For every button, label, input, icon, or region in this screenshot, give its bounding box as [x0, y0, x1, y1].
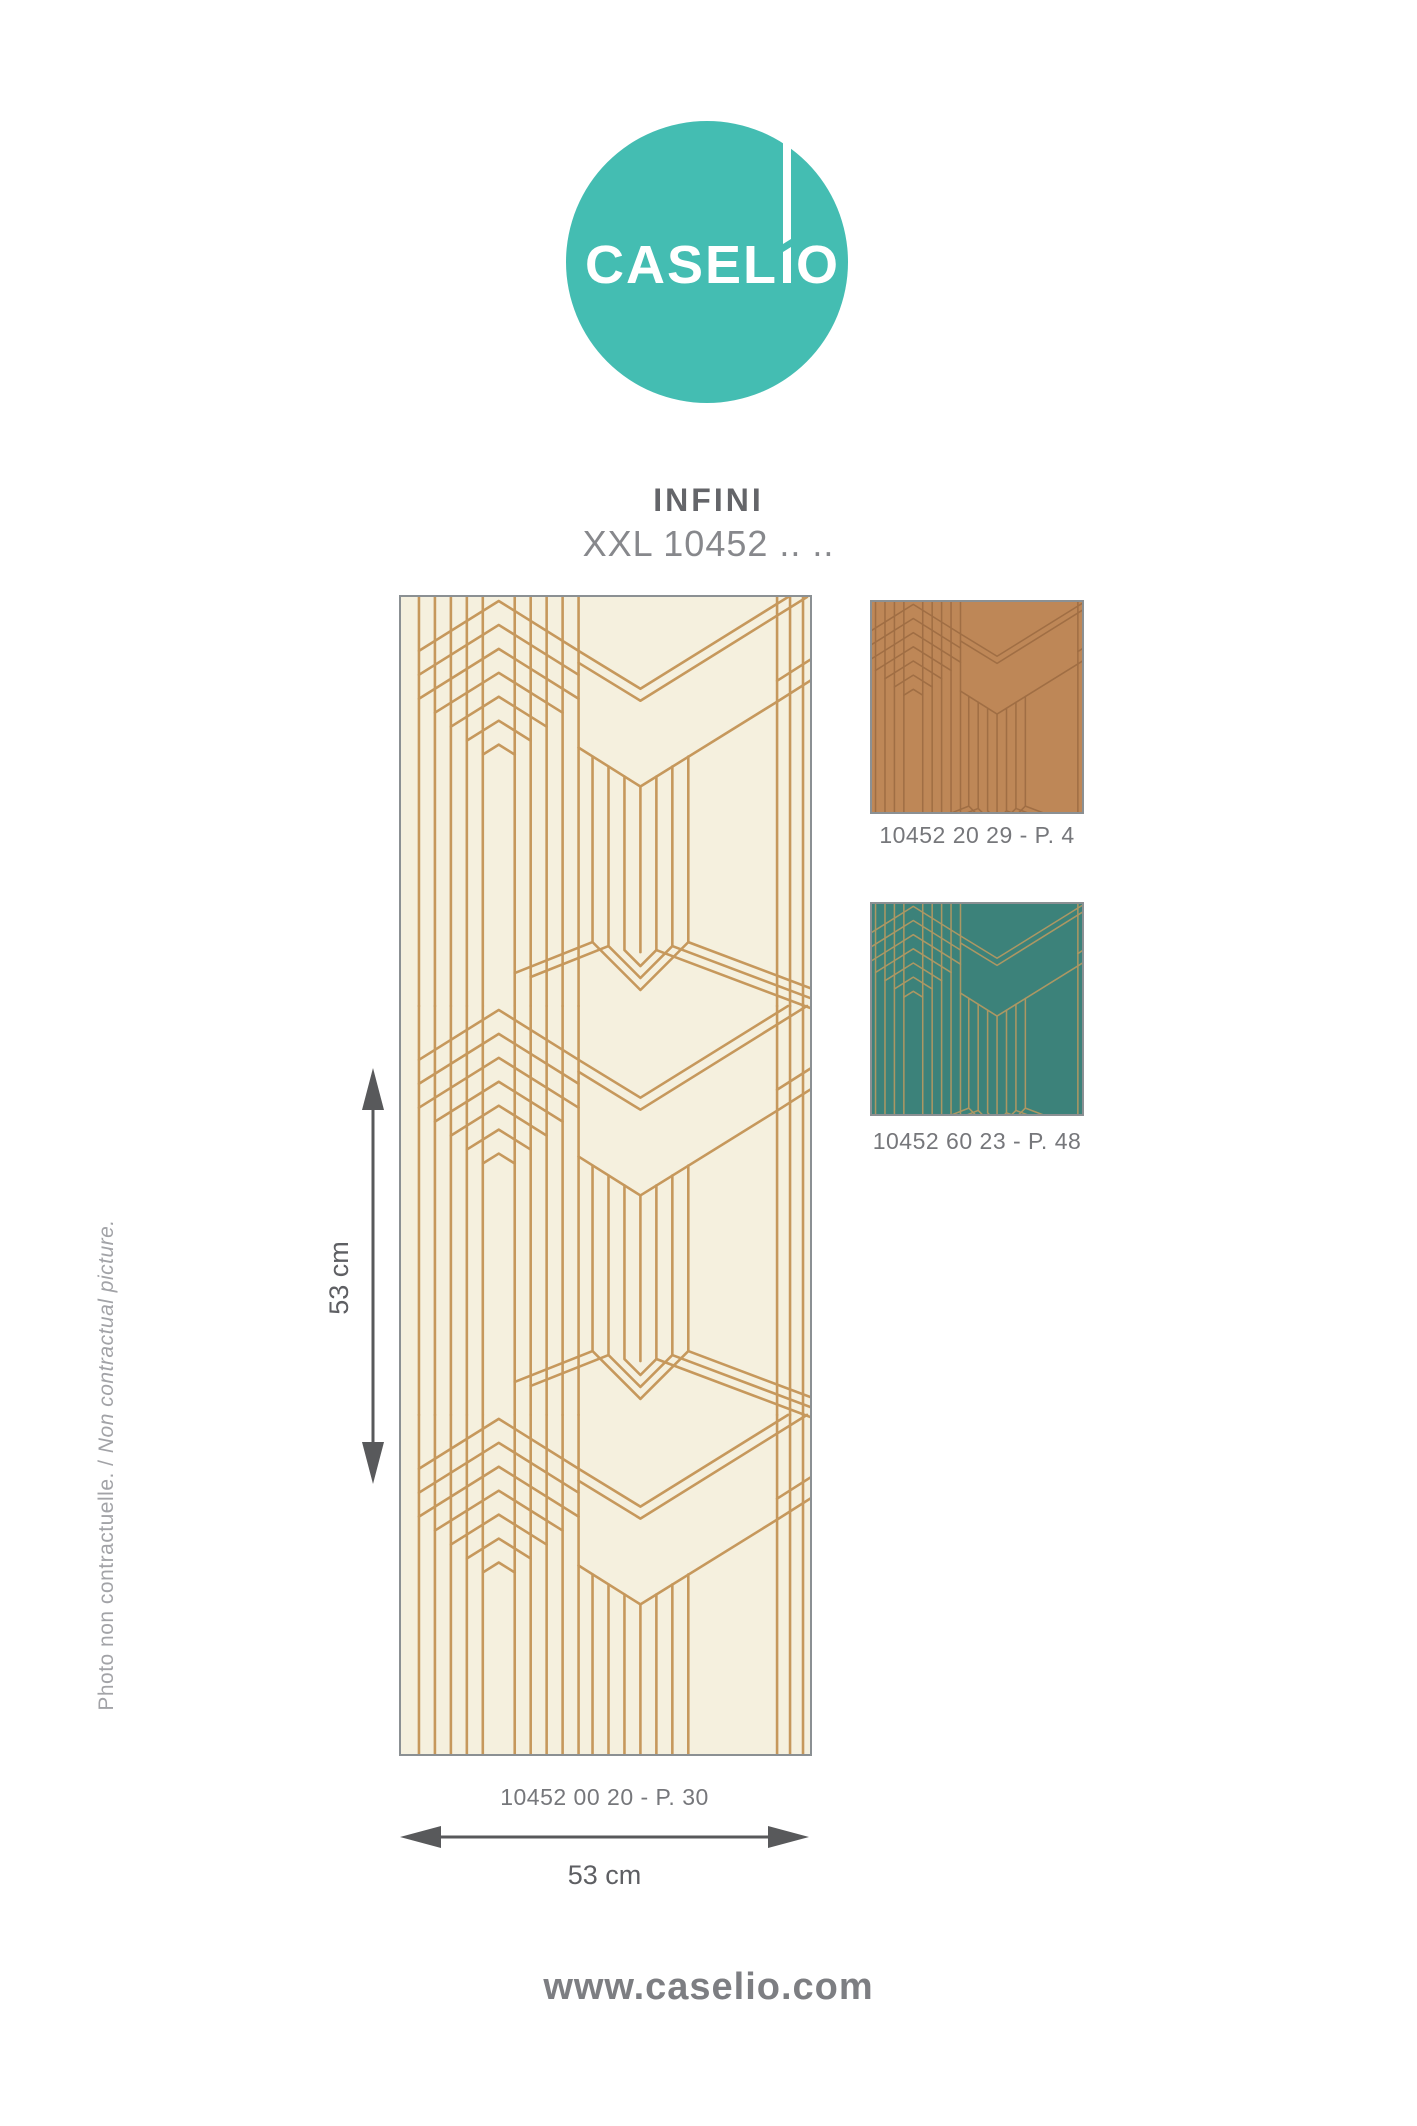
horizontal-dimension-arrow-icon — [399, 1822, 810, 1852]
colorway-swatch-1 — [870, 600, 1084, 814]
colorway-swatch-2 — [870, 902, 1084, 1116]
colorway-swatch-2-pattern — [872, 904, 1082, 1114]
main-sample-reference: 10452 00 20 - P. 30 — [399, 1784, 810, 1811]
height-dimension-label: 53 cm — [324, 1198, 356, 1358]
main-wallpaper-pattern — [401, 597, 810, 1754]
main-pattern-background — [401, 597, 810, 1754]
page-title: INFINI — [0, 482, 1417, 519]
swatch-2-reference: 10452 60 23 - P. 48 — [820, 1128, 1134, 1155]
colorway-swatch-1-pattern — [872, 602, 1082, 812]
vertical-dimension-arrow-icon — [351, 1066, 395, 1486]
width-dimension-label: 53 cm — [399, 1860, 810, 1891]
non-contractual-note-fr: Photo non contractuelle. / — [95, 1459, 118, 1710]
logo-mark-bar-icon — [783, 138, 791, 244]
website-link[interactable]: www.caselio.com — [0, 1966, 1417, 2009]
product-sheet-page: CASEL O INFINI XXL 10452 .. .. 53 cm 104… — [0, 0, 1417, 2126]
main-wallpaper-sample — [399, 595, 812, 1756]
non-contractual-note: Photo non contractuelle. / Non contractu… — [95, 1160, 125, 1770]
non-contractual-note-en: Non contractual picture. — [95, 1219, 118, 1453]
logo-text-right: O — [796, 235, 838, 295]
logo-mark-stem-icon — [783, 247, 791, 283]
caselio-logo: CASEL O — [565, 120, 849, 404]
page-subtitle: XXL 10452 .. .. — [0, 523, 1417, 565]
logo-text-left: CASEL — [585, 235, 778, 295]
swatch-1-reference: 10452 20 29 - P. 4 — [820, 822, 1134, 849]
